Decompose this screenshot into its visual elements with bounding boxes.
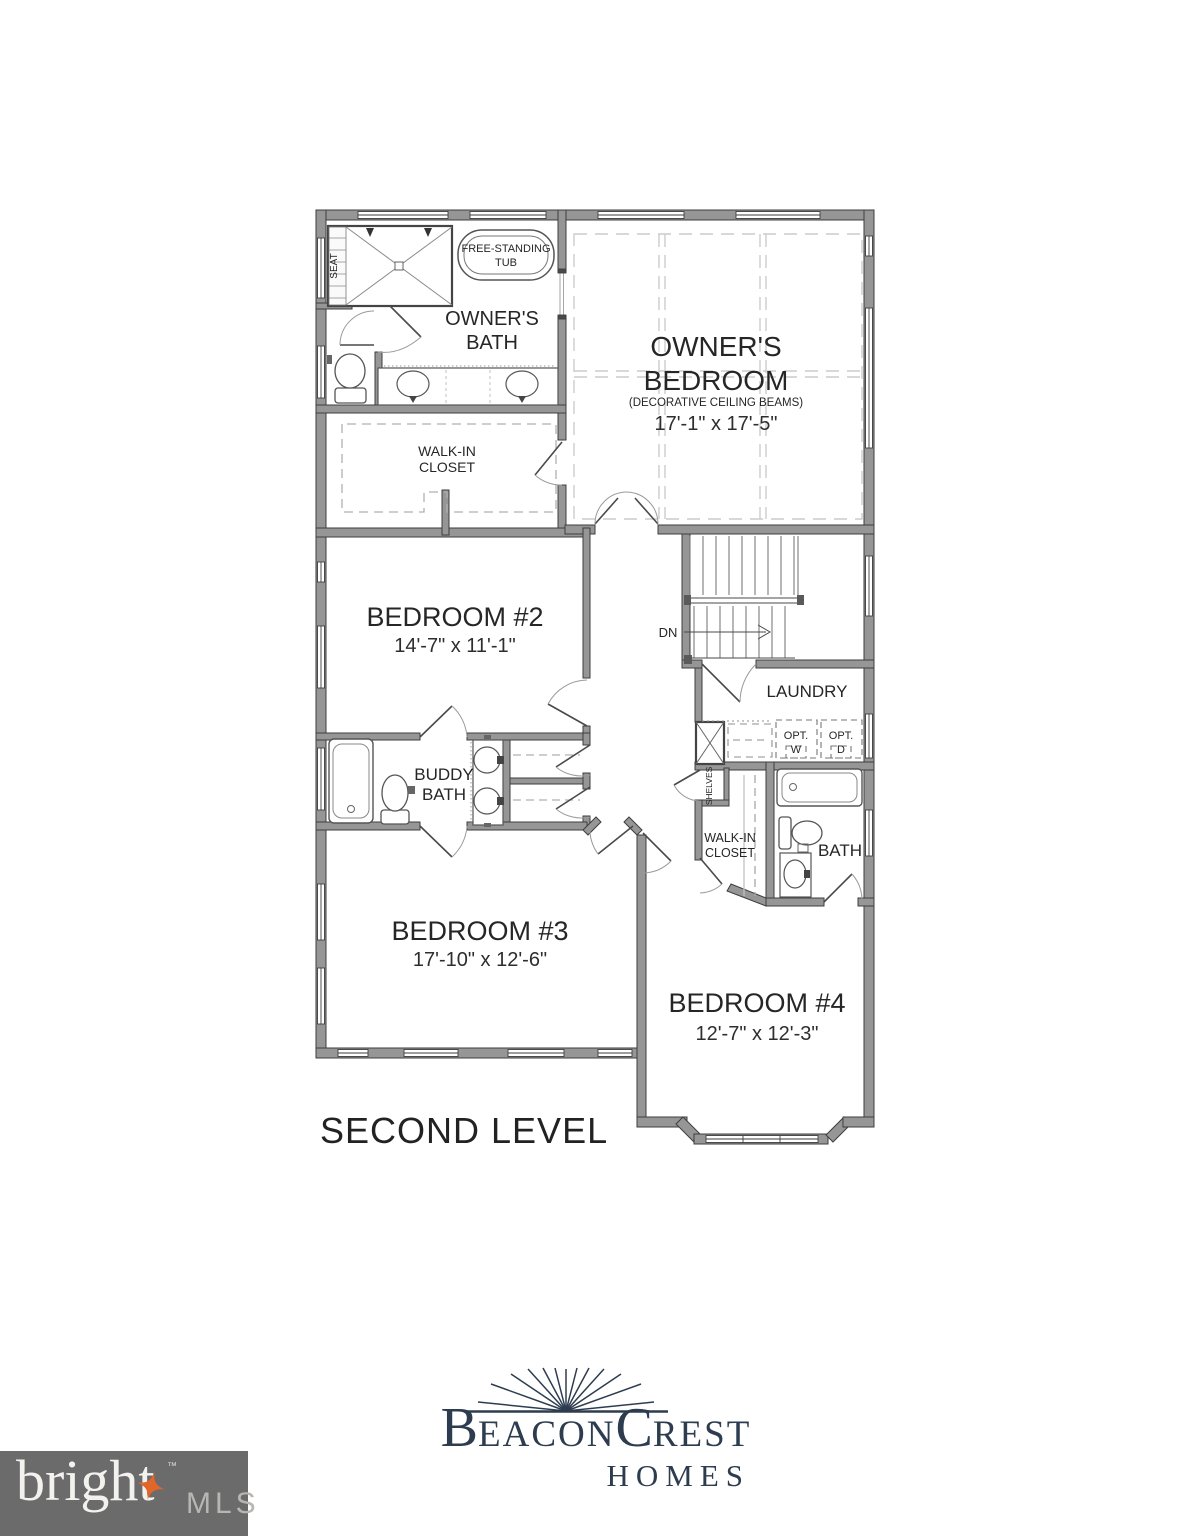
bedroom2-label: BEDROOM #2 bbox=[366, 602, 543, 632]
owners-bath-label-1: OWNER'S bbox=[445, 308, 539, 330]
owners-bedroom-note: (DECORATIVE CEILING BEAMS) bbox=[629, 397, 803, 409]
opt-w-label-2: W bbox=[791, 744, 802, 756]
logo-part-eacon: EACON bbox=[478, 1414, 615, 1455]
mls-label: MLS bbox=[186, 1487, 260, 1521]
bath-label: BATH bbox=[818, 841, 862, 860]
tub-label-1: FREE-STANDING bbox=[461, 243, 550, 255]
tub-label-2: TUB bbox=[495, 257, 517, 269]
buddy-bath-label-1: BUDDY bbox=[414, 765, 474, 784]
wic-b4-label-1: WALK-IN bbox=[704, 831, 756, 845]
opt-w-label-1: OPT. bbox=[784, 730, 808, 742]
bedroom4-label: BEDROOM #4 bbox=[668, 988, 845, 1018]
stairs-dn-label: DN bbox=[659, 625, 678, 640]
stairs-direction-arrow bbox=[684, 625, 770, 639]
room-labels: OWNER'S BATH FREE-STANDING TUB SEAT OWNE… bbox=[329, 243, 862, 1045]
star-icon bbox=[134, 1469, 168, 1503]
buddy-toilet bbox=[381, 775, 415, 824]
buddy-tub bbox=[329, 739, 373, 823]
owners-toilet bbox=[327, 354, 366, 403]
opt-d-label-2: D bbox=[837, 744, 845, 756]
opt-d-label-1: OPT. bbox=[829, 730, 853, 742]
seat-label: SEAT bbox=[329, 253, 340, 278]
hall-bathtub bbox=[777, 769, 862, 806]
staircase bbox=[684, 536, 804, 664]
floor-plan-page: OWNER'S BATH FREE-STANDING TUB SEAT OWNE… bbox=[0, 0, 1187, 1536]
buddy-vanity bbox=[471, 735, 504, 827]
shower bbox=[328, 226, 452, 306]
owners-vanity bbox=[378, 366, 558, 405]
owners-bedroom-label-1: OWNER'S bbox=[650, 331, 781, 362]
builder-logo: BEACONCREST HOMES bbox=[428, 1366, 764, 1498]
hall-sink bbox=[780, 844, 811, 897]
wic-b4-label-2: CLOSET bbox=[705, 846, 755, 860]
owners-bath-label-2: BATH bbox=[466, 332, 518, 354]
builder-logo-homes: HOMES bbox=[606, 1458, 750, 1494]
bedroom4-dims: 12'-7" x 12'-3" bbox=[695, 1023, 818, 1045]
bedroom3-dims: 17'-10" x 12'-6" bbox=[413, 949, 547, 971]
owners-bedroom-label-2: BEDROOM bbox=[644, 365, 789, 396]
floor-plan-drawing: OWNER'S BATH FREE-STANDING TUB SEAT OWNE… bbox=[0, 0, 1187, 1536]
trademark-symbol: ™ bbox=[167, 1461, 177, 1472]
builder-logo-wordmark: BEACONCREST bbox=[428, 1400, 764, 1456]
laundry-label: LAUNDRY bbox=[767, 682, 848, 701]
logo-part-rest: REST bbox=[653, 1414, 751, 1455]
freestanding-tub bbox=[458, 230, 554, 280]
wic-owner-label-1: WALK-IN bbox=[418, 443, 476, 459]
level-title: SECOND LEVEL bbox=[320, 1110, 608, 1152]
logo-letter-b: B bbox=[441, 1397, 478, 1459]
bedroom2-dims: 14'-7" x 11'-1" bbox=[394, 635, 516, 657]
shelves-label: SHELVES bbox=[704, 766, 714, 805]
wic-owner-label-2: CLOSET bbox=[419, 459, 475, 475]
bright-mls-watermark: bright ™ MLS bbox=[0, 1451, 248, 1536]
laundry-chase bbox=[696, 722, 724, 764]
logo-letter-c: C bbox=[615, 1397, 652, 1459]
buddy-bath-label-2: BATH bbox=[422, 785, 466, 804]
bedroom3-label: BEDROOM #3 bbox=[391, 916, 568, 946]
owners-bedroom-dims: 17'-1" x 17'-5" bbox=[654, 413, 777, 435]
